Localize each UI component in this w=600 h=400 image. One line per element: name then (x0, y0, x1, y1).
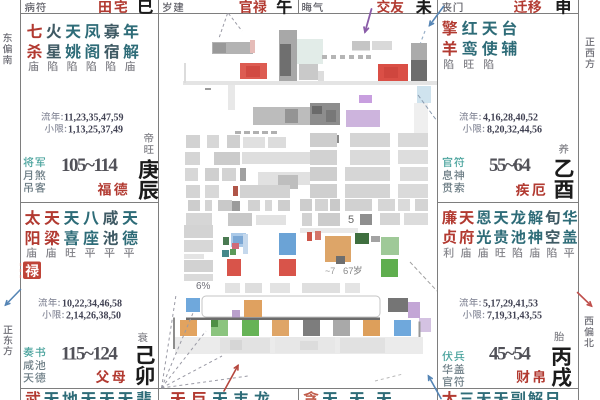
svg-text:4,16,28,40,52: 4,16,28,40,52 (483, 113, 538, 124)
svg-text:55~64: 55~64 (489, 155, 531, 176)
svg-text:8,20,32,44,56: 8,20,32,44,56 (487, 125, 542, 136)
svg-text:1,13,25,37,49: 1,13,25,37,49 (68, 125, 123, 136)
svg-text:67: 67 (343, 266, 354, 277)
svg-text:10,22,34,46,58: 10,22,34,46,58 (62, 299, 122, 310)
svg-text:45~54: 45~54 (489, 344, 531, 365)
svg-text:115~124: 115~124 (61, 344, 118, 365)
svg-text:5: 5 (348, 214, 354, 226)
svg-text:7,19,31,43,55: 7,19,31,43,55 (487, 311, 542, 322)
svg-text:105~114: 105~114 (61, 155, 118, 176)
svg-text:6%: 6% (196, 281, 211, 292)
svg-text:5,17,29,41,53: 5,17,29,41,53 (483, 299, 538, 310)
svg-text:~7: ~7 (325, 266, 335, 276)
svg-text:2,14,26,38,50: 2,14,26,38,50 (66, 311, 121, 322)
svg-text:11,23,35,47,59: 11,23,35,47,59 (64, 113, 123, 124)
